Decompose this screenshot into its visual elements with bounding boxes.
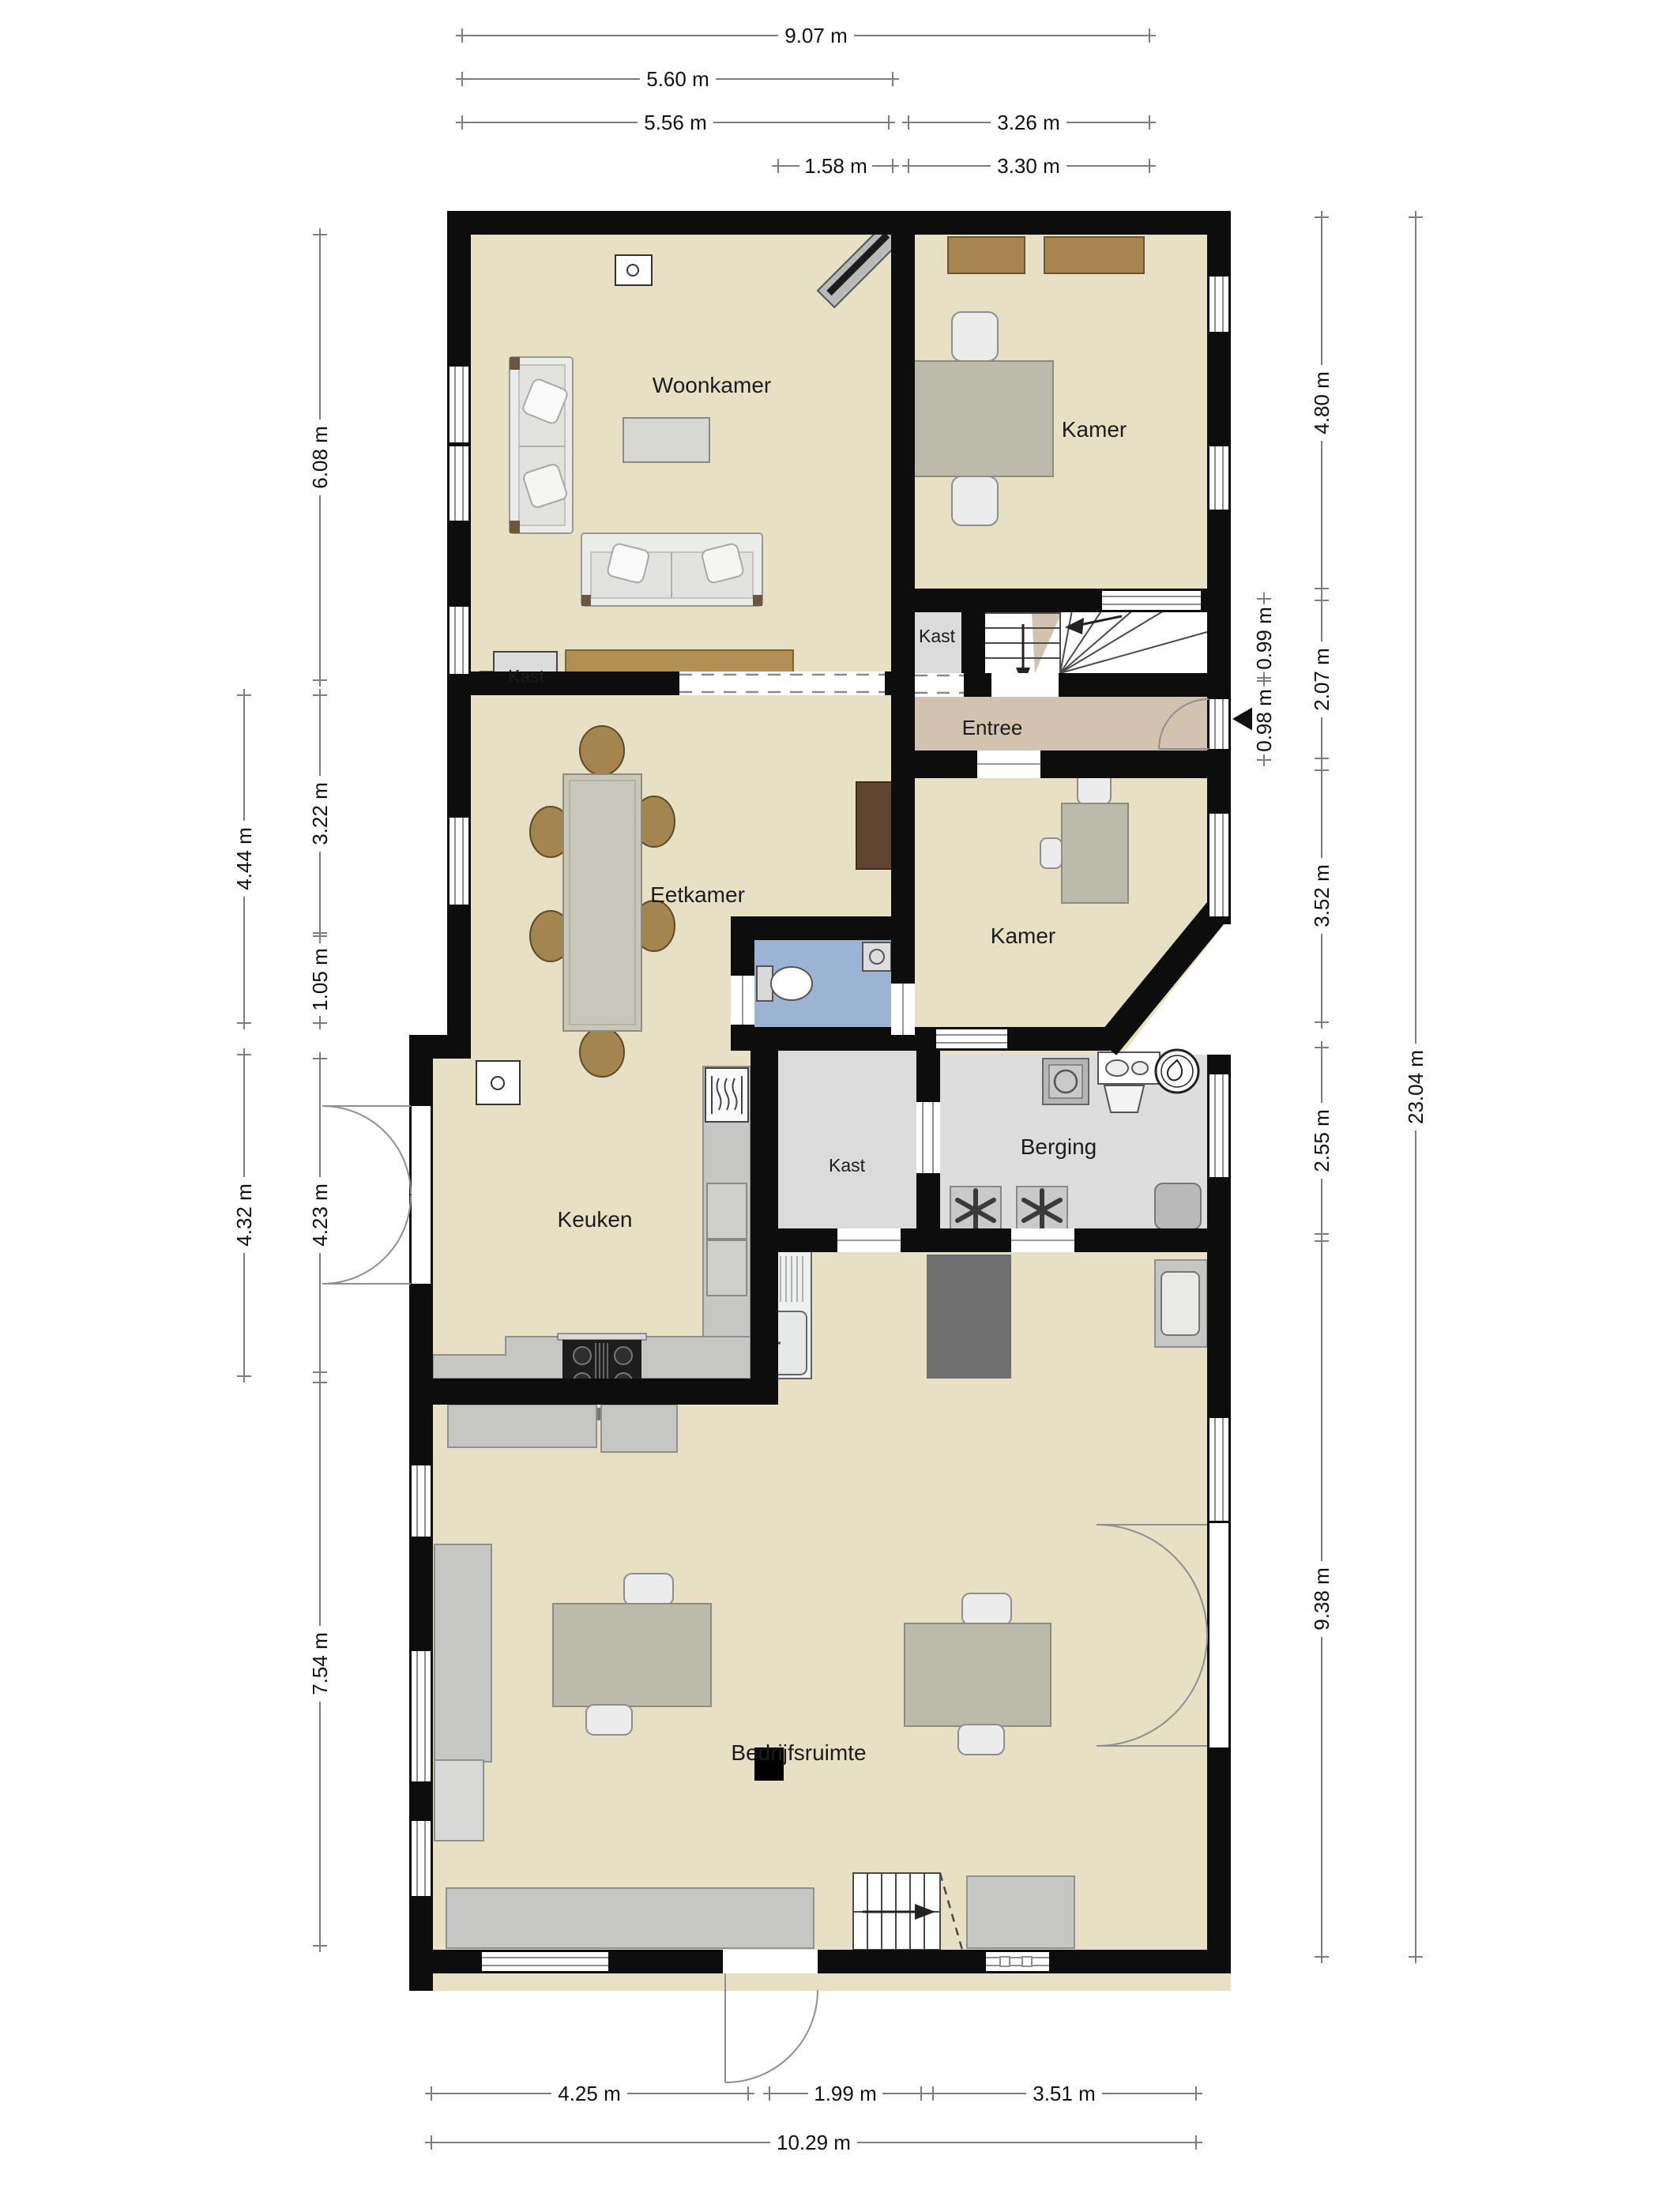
dim-0-99: 0.99 m [1252, 607, 1276, 670]
dim-3-52: 3.52 m [1310, 864, 1334, 927]
dim-bottom: 4.25 m 1.99 m 3.51 m 10.29 m [431, 2082, 1196, 2154]
side-table [967, 1876, 1074, 1948]
french-doors-kitchen [322, 1106, 431, 1284]
sofa-left [510, 357, 573, 533]
door-berging [1011, 1228, 1074, 1252]
wall-box [434, 1760, 483, 1841]
oven-icon [705, 1068, 748, 1122]
cabinet [601, 1405, 677, 1452]
window-berging-top [936, 1029, 1007, 1048]
label-kamer-top: Kamer [1062, 417, 1127, 442]
window-right [1209, 814, 1228, 916]
door-kast-mid [837, 1228, 901, 1252]
toilet-bowl [771, 967, 812, 1000]
cabinet-1 [948, 237, 1025, 273]
dim-4-80: 4.80 m [1310, 371, 1334, 434]
door-eetkamer-kamer [891, 984, 915, 1035]
window-left [412, 1821, 431, 1896]
stairs-access [991, 673, 1059, 697]
window-right [1209, 1418, 1228, 1521]
dim-3-26: 3.26 m [997, 111, 1060, 134]
dim-5-60: 5.60 m [646, 67, 709, 91]
label-berging: Berging [1021, 1134, 1097, 1159]
kast-mid-floor [778, 1051, 916, 1228]
corner-sink [1155, 1260, 1207, 1347]
dim-10-29: 10.29 m [777, 2131, 851, 2154]
sofa-bottom [581, 533, 762, 606]
dim-4-44: 4.44 m [232, 827, 256, 890]
dim-23-04: 23.04 m [1404, 1050, 1428, 1124]
coffee-table [623, 418, 709, 462]
hand-basin [863, 942, 891, 971]
chair [1040, 838, 1062, 868]
side-counter [434, 1544, 491, 1762]
dim-4-32: 4.32 m [232, 1183, 256, 1247]
boiler-icon [476, 1061, 520, 1104]
boiler-icon [1156, 1050, 1198, 1093]
dim-6-08: 6.08 m [308, 426, 332, 489]
side-door-leaf [1155, 1183, 1201, 1229]
label-kast-woonkamer: Kast [508, 666, 545, 687]
label-kast-mid: Kast [829, 1155, 866, 1176]
label-eetkamer: Eetkamer [650, 882, 745, 907]
dark-platform [927, 1255, 1011, 1379]
desk [1062, 803, 1128, 903]
window-left [450, 367, 468, 442]
label-woonkamer: Woonkamer [653, 373, 771, 397]
dim-4-25: 4.25 m [558, 2082, 621, 2105]
dim-right: 4.80 m 2.07 m 0.99 m 0.98 m 3.52 m 2.55 … [1252, 217, 1428, 1957]
open-passage [679, 671, 885, 695]
window-bottom [482, 1952, 608, 1971]
window-left [412, 1651, 431, 1781]
dim-7-54: 7.54 m [308, 1632, 332, 1695]
cabinet-2 [1044, 237, 1144, 273]
dim-1-99: 1.99 m [814, 2082, 877, 2105]
window-right [1209, 1074, 1228, 1177]
cabinet [448, 1405, 596, 1447]
dim-top: 9.07 m 5.60 m 5.56 m 3.26 m 1.58 m 3.30 … [462, 24, 1149, 178]
door-bottom [723, 1950, 818, 2082]
dim-2-07: 2.07 m [1310, 648, 1334, 711]
dim-5-56: 5.56 m [644, 111, 707, 134]
desk [911, 361, 1053, 476]
label-keuken: Keuken [558, 1207, 633, 1232]
window-bottom [986, 1952, 1049, 1971]
window-right [1209, 446, 1228, 510]
dim-0-98: 0.98 m [1252, 689, 1276, 752]
label-kamer-mid: Kamer [991, 924, 1055, 948]
window-left [450, 607, 468, 674]
dim-4-23: 4.23 m [308, 1183, 332, 1247]
dim-3-30: 3.30 m [997, 154, 1060, 178]
appliance [707, 1240, 747, 1296]
dining-chair [580, 726, 624, 775]
bottom-counter [446, 1888, 814, 1948]
dim-1-05: 1.05 m [308, 948, 332, 1011]
label-entree: Entree [962, 716, 1023, 739]
sideboard [856, 782, 896, 869]
ceiling-point-icon [615, 255, 653, 285]
window-left [450, 818, 468, 905]
window-right [1209, 276, 1228, 332]
window-left [450, 446, 468, 521]
floorplan-canvas: Woonkamer Kamer Kast Entree Eetkamer Kam… [0, 0, 1659, 2212]
chair [952, 312, 998, 361]
dining-chair [580, 1028, 624, 1077]
chair [952, 476, 998, 525]
appliance [707, 1183, 747, 1239]
dim-9-38: 9.38 m [1310, 1567, 1334, 1631]
dim-3-22: 3.22 m [308, 782, 332, 845]
dim-9-07: 9.07 m [784, 24, 848, 47]
dim-2-55: 2.55 m [1310, 1109, 1334, 1172]
entree-floor [915, 697, 1207, 750]
window-left [412, 1465, 431, 1537]
dim-1-58: 1.58 m [804, 154, 867, 178]
label-kast-top: Kast [919, 626, 956, 646]
window-above-stairs [1102, 591, 1201, 610]
washing-machine [1043, 1059, 1089, 1104]
dining-table [563, 774, 641, 1031]
door-entree-kamer [977, 750, 1040, 778]
door-toilet [731, 976, 754, 1025]
dim-left: 6.08 m 3.22 m 1.05 m 4.44 m 4.32 m 4.23 … [232, 235, 332, 1946]
dim-3-51: 3.51 m [1033, 2082, 1096, 2105]
ventilation-fan [1017, 1187, 1067, 1235]
kast-top-front [915, 673, 964, 697]
ventilation-fan [950, 1187, 1001, 1235]
floorplan-page: Woonkamer Kamer Kast Entree Eetkamer Kam… [0, 0, 1659, 2212]
label-bedrijfsruimte: Bedrijfsruimte [731, 1740, 866, 1765]
window-kast-berging [916, 1102, 940, 1173]
